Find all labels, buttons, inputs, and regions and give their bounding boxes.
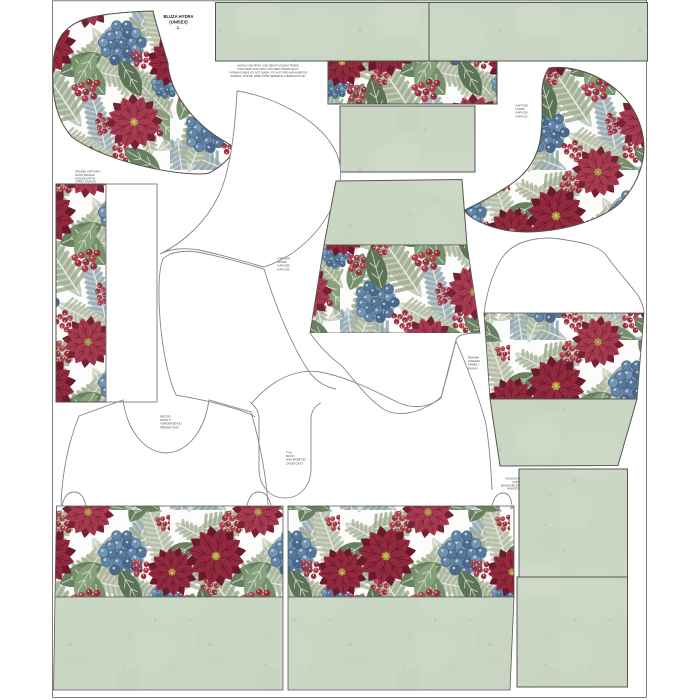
- svg-text:CUFF/: CUFF/: [512, 480, 520, 484]
- svg-text:(UNISEX): (UNISEX): [169, 20, 188, 25]
- svg-text:USZYCIEM! ACHTUNG! VOR DEM NÄH: USZYCIEM! ACHTUNG! VOR DEM NÄHEN NICHT: [237, 67, 299, 71]
- svg-text:L: L: [177, 25, 180, 30]
- svg-text:BLUZA HYDRA: BLUZA HYDRA: [163, 14, 193, 19]
- svg-text:KAPUCE: KAPUCE: [278, 267, 290, 271]
- svg-text:PŘEDNÍ ČÁST: PŘEDNÍ ČÁST: [160, 424, 180, 429]
- svg-text:ZADNÍ ČÁST: ZADNÍ ČÁST: [286, 460, 303, 465]
- svg-text:KAPUZE MITTE/: KAPUZE MITTE/: [75, 176, 96, 180]
- svg-text:VORWASCHEN! DO NOT WASH / DO N: VORWASCHEN! DO NOT WASH / DO NOT PRE-WAS…: [229, 71, 307, 75]
- svg-text:HOOD MIDDLE/: HOOD MIDDLE/: [75, 173, 95, 177]
- svg-text:RUKÁV: RUKÁV: [468, 366, 478, 370]
- svg-text:KAPUCE: KAPUCE: [516, 114, 528, 118]
- svg-text:MANSCHETTE/: MANSCHETTE/: [501, 483, 521, 487]
